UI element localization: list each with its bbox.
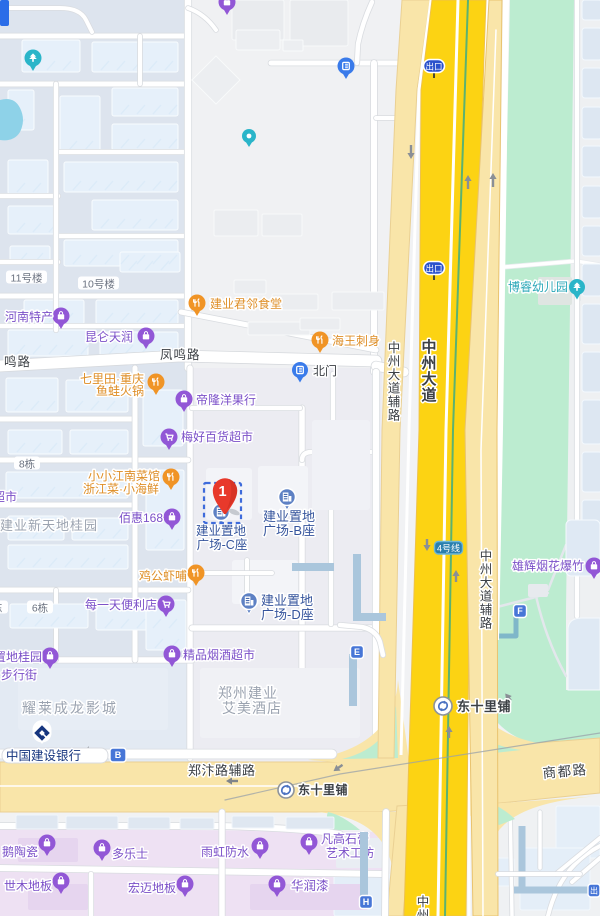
svg-text:E: E (354, 647, 360, 657)
svg-text:出口: 出口 (425, 62, 442, 72)
svg-text:浙江菜·小海鲜: 浙江菜·小海鲜 (83, 481, 159, 496)
svg-text:中: 中 (388, 340, 401, 355)
svg-text:H: H (363, 897, 370, 907)
svg-text:中: 中 (421, 338, 436, 356)
svg-text:世木地板: 世木地板 (4, 879, 52, 893)
svg-text:F: F (517, 606, 523, 616)
svg-text:置地桂园: 置地桂园 (0, 649, 42, 664)
svg-text:6栋: 6栋 (32, 602, 49, 615)
svg-text:道: 道 (480, 590, 493, 604)
svg-text:路: 路 (388, 408, 401, 423)
svg-text:宏迈地板: 宏迈地板 (128, 880, 176, 895)
svg-text:郑汴路辅路: 郑汴路辅路 (188, 763, 256, 778)
svg-text:中国建设银行: 中国建设银行 (6, 748, 81, 763)
svg-text:出口: 出口 (425, 264, 442, 274)
svg-text:道: 道 (388, 382, 401, 396)
svg-text:州: 州 (480, 563, 493, 577)
svg-text:精品烟酒超市: 精品烟酒超市 (183, 647, 255, 662)
svg-text:雄辉烟花爆竹: 雄辉烟花爆竹 (512, 558, 584, 573)
svg-text:辅: 辅 (480, 603, 493, 617)
svg-text:辅: 辅 (388, 395, 401, 409)
svg-text:广场-D座: 广场-D座 (261, 607, 314, 622)
svg-text:凤鸣路: 凤鸣路 (160, 347, 201, 362)
svg-text:广场-C座: 广场-C座 (197, 537, 248, 552)
svg-text:大: 大 (388, 368, 401, 382)
svg-text:1: 1 (218, 484, 226, 500)
svg-text:道: 道 (421, 386, 436, 404)
svg-text:多乐士: 多乐士 (112, 847, 148, 861)
svg-text:广场-B座: 广场-B座 (263, 523, 315, 538)
svg-text:海王刺身: 海王刺身 (332, 333, 380, 348)
svg-text:昆仑天润: 昆仑天润 (85, 330, 133, 344)
svg-text:东十里铺: 东十里铺 (298, 782, 348, 797)
svg-text:州: 州 (420, 355, 436, 372)
svg-text:超市: 超市 (0, 489, 17, 504)
svg-text:建业君邻食堂: 建业君邻食堂 (210, 296, 282, 311)
svg-text:步行街: 步行街 (1, 668, 37, 682)
svg-text:大: 大 (480, 576, 493, 590)
svg-text:佰惠168: 佰惠168 (119, 511, 163, 525)
svg-text:鸣路: 鸣路 (4, 354, 31, 369)
svg-text:建业置地: 建业置地 (196, 524, 247, 538)
svg-text:华润漆: 华润漆 (291, 878, 329, 893)
svg-text:博睿幼儿园: 博睿幼儿园 (508, 279, 568, 294)
svg-text:小小江南菜馆: 小小江南菜馆 (88, 468, 160, 483)
svg-text:帝隆洋果行: 帝隆洋果行 (196, 392, 256, 407)
svg-text:大: 大 (421, 370, 436, 388)
svg-text:郑州建业: 郑州建业 (218, 685, 278, 701)
svg-text:州: 州 (388, 355, 401, 369)
svg-text:雨虹防水: 雨虹防水 (201, 844, 249, 859)
svg-text:4号线: 4号线 (437, 543, 460, 554)
svg-text:11号楼: 11号楼 (11, 272, 43, 285)
svg-text:建业置地: 建业置地 (263, 509, 315, 524)
svg-text:B: B (115, 750, 122, 760)
svg-text:艾美酒店: 艾美酒店 (222, 700, 282, 716)
svg-text:每一天便利店: 每一天便利店 (85, 597, 157, 612)
svg-text:州: 州 (417, 909, 430, 916)
svg-text:河南特产: 河南特产 (5, 309, 53, 324)
svg-text:鱼蛙火锅: 鱼蛙火锅 (96, 383, 144, 398)
svg-text:鸡公虾哺: 鸡公虾哺 (139, 568, 187, 583)
svg-text:东十里铺: 东十里铺 (457, 699, 511, 714)
svg-text:梅好百货超市: 梅好百货超市 (181, 429, 253, 444)
svg-text:中: 中 (417, 894, 430, 909)
svg-text:中: 中 (480, 548, 493, 563)
svg-text:耀莱成龙影城: 耀莱成龙影城 (22, 700, 118, 716)
svg-text:北门: 北门 (313, 363, 337, 378)
svg-text:建业新天地桂园: 建业新天地桂园 (0, 518, 98, 533)
svg-text:鹅陶瓷: 鹅陶瓷 (2, 844, 38, 859)
svg-text:建业置地: 建业置地 (261, 593, 313, 608)
svg-text:10号楼: 10号楼 (82, 278, 115, 291)
svg-text:出: 出 (590, 886, 598, 896)
svg-text:8栋: 8栋 (19, 458, 36, 471)
svg-text:路: 路 (480, 616, 493, 631)
